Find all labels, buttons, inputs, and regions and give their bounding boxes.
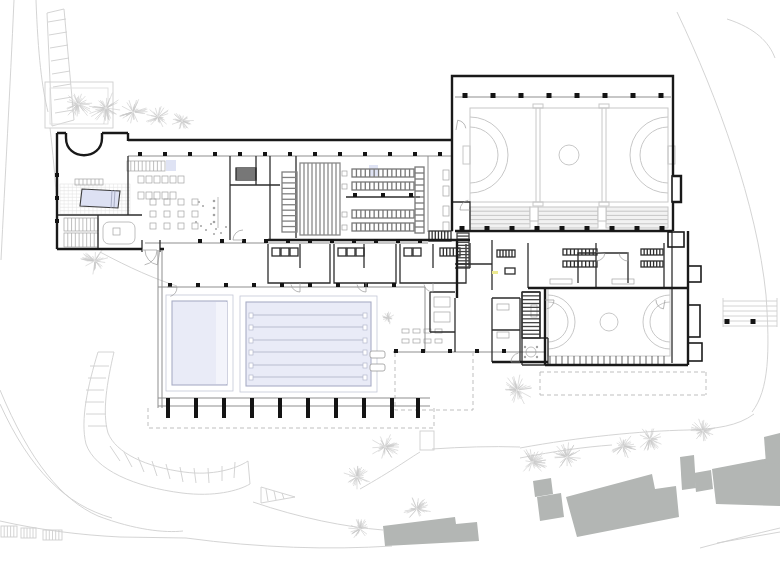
facade-columns xyxy=(263,152,267,156)
tree xyxy=(404,497,431,517)
facade-columns xyxy=(413,152,417,156)
facade-columns xyxy=(338,152,342,156)
facade-columns xyxy=(313,152,317,156)
tree xyxy=(523,449,546,471)
pool-hall-columns xyxy=(392,283,396,287)
cafe-tables xyxy=(164,211,170,217)
hall-columns xyxy=(547,93,552,98)
hall-columns xyxy=(463,93,468,98)
facade-columns xyxy=(138,152,142,156)
bleachers xyxy=(606,207,668,228)
pool-loungers xyxy=(402,339,409,343)
neighbor-building xyxy=(537,493,564,521)
pool-loungers xyxy=(413,339,420,343)
terrace-tables xyxy=(436,379,439,382)
hall-columns xyxy=(575,93,580,98)
terrace-tables xyxy=(426,379,429,382)
cafe-tables xyxy=(178,223,184,229)
hall-columns xyxy=(519,93,524,98)
pool-ladder xyxy=(370,364,385,371)
terrace-tables xyxy=(436,368,439,371)
terrace-tables xyxy=(436,379,439,382)
terrace-tables xyxy=(417,379,420,382)
cafe-tables xyxy=(192,199,198,205)
hall-columns xyxy=(635,226,640,231)
hall-columns xyxy=(610,226,615,231)
floor-plan-svg xyxy=(0,0,780,561)
main-hall-wall xyxy=(452,76,673,176)
facade-columns xyxy=(163,152,167,156)
hall-columns xyxy=(535,226,540,231)
cafe-tables xyxy=(178,199,184,205)
facade-columns xyxy=(363,152,367,156)
tree xyxy=(505,375,532,404)
pool-hall-columns xyxy=(224,283,228,287)
pool-hall-columns xyxy=(196,283,200,287)
cafe-tables xyxy=(192,223,198,229)
planter xyxy=(420,431,434,450)
tree xyxy=(146,106,168,127)
tree xyxy=(172,113,194,129)
hall-columns xyxy=(510,226,515,231)
stair xyxy=(457,233,469,267)
terrace-tables xyxy=(426,379,429,382)
hall-columns xyxy=(485,226,490,231)
tree xyxy=(67,94,92,117)
terrace-tables xyxy=(417,368,420,371)
pool-hall-columns xyxy=(252,283,256,287)
bleachers xyxy=(538,207,598,228)
floor-plan-canvas xyxy=(0,0,780,561)
hall-columns xyxy=(603,93,608,98)
terrace-tables xyxy=(436,368,439,371)
hall-columns xyxy=(560,226,565,231)
hall-columns xyxy=(660,226,665,231)
cafe-tables xyxy=(150,223,156,229)
terrace-tables xyxy=(445,368,448,371)
layer-partitions xyxy=(57,156,702,365)
highlight-mark xyxy=(492,271,498,274)
terrace-tables xyxy=(426,368,429,371)
neighbor-building xyxy=(680,455,696,490)
neighbor-building xyxy=(694,470,713,492)
neighbor-building xyxy=(533,478,553,497)
pool-hall-columns xyxy=(336,283,340,287)
tree xyxy=(553,442,580,467)
tree xyxy=(89,93,120,124)
facade-columns xyxy=(438,152,442,156)
main-hall-court xyxy=(470,108,668,202)
entrance-vestibule-curve xyxy=(57,133,128,155)
terrace-tables xyxy=(417,368,420,371)
hall-columns xyxy=(631,93,636,98)
pool-hall-columns xyxy=(308,283,312,287)
pool-hall-columns xyxy=(168,283,172,287)
lounge-rug xyxy=(103,222,135,244)
cafe-tables xyxy=(150,199,156,205)
pool-loungers xyxy=(413,329,420,333)
tree xyxy=(612,436,636,458)
pool-loungers xyxy=(435,339,442,343)
terrace-tables xyxy=(445,379,448,382)
terrace-tables xyxy=(417,379,420,382)
neighbor-building xyxy=(566,474,679,537)
facade-columns xyxy=(188,152,192,156)
pool-ladder xyxy=(370,351,385,358)
parking-strip-north xyxy=(47,9,74,126)
layer-neighbor-buildings xyxy=(383,433,780,546)
tree xyxy=(382,312,394,325)
secondary-hall-court xyxy=(548,288,670,356)
cafe-tables xyxy=(150,211,156,217)
locker-row xyxy=(563,261,597,267)
terrace-tables xyxy=(445,379,448,382)
hall-columns xyxy=(460,226,465,231)
hall-columns xyxy=(491,93,496,98)
cafe-tables xyxy=(192,211,198,217)
cafe-tables xyxy=(164,223,170,229)
facade-columns xyxy=(288,152,292,156)
hall-columns xyxy=(585,226,590,231)
layer-accents xyxy=(492,271,498,274)
tree xyxy=(119,99,147,123)
locker-row xyxy=(563,249,597,255)
cafe-tables xyxy=(164,199,170,205)
pool-loungers xyxy=(402,329,409,333)
tree xyxy=(372,434,399,458)
neighbor-building xyxy=(764,433,780,464)
neighbor-building xyxy=(383,517,479,546)
facade-columns xyxy=(238,152,242,156)
hall-columns xyxy=(659,93,664,98)
terrace-tables xyxy=(426,368,429,371)
layer-site xyxy=(0,0,780,548)
cafe-tables xyxy=(178,211,184,217)
facade-columns xyxy=(388,152,392,156)
pool-hall-columns xyxy=(280,283,284,287)
facade-columns xyxy=(213,152,217,156)
terrace-tables xyxy=(445,368,448,371)
bleachers xyxy=(470,207,530,228)
